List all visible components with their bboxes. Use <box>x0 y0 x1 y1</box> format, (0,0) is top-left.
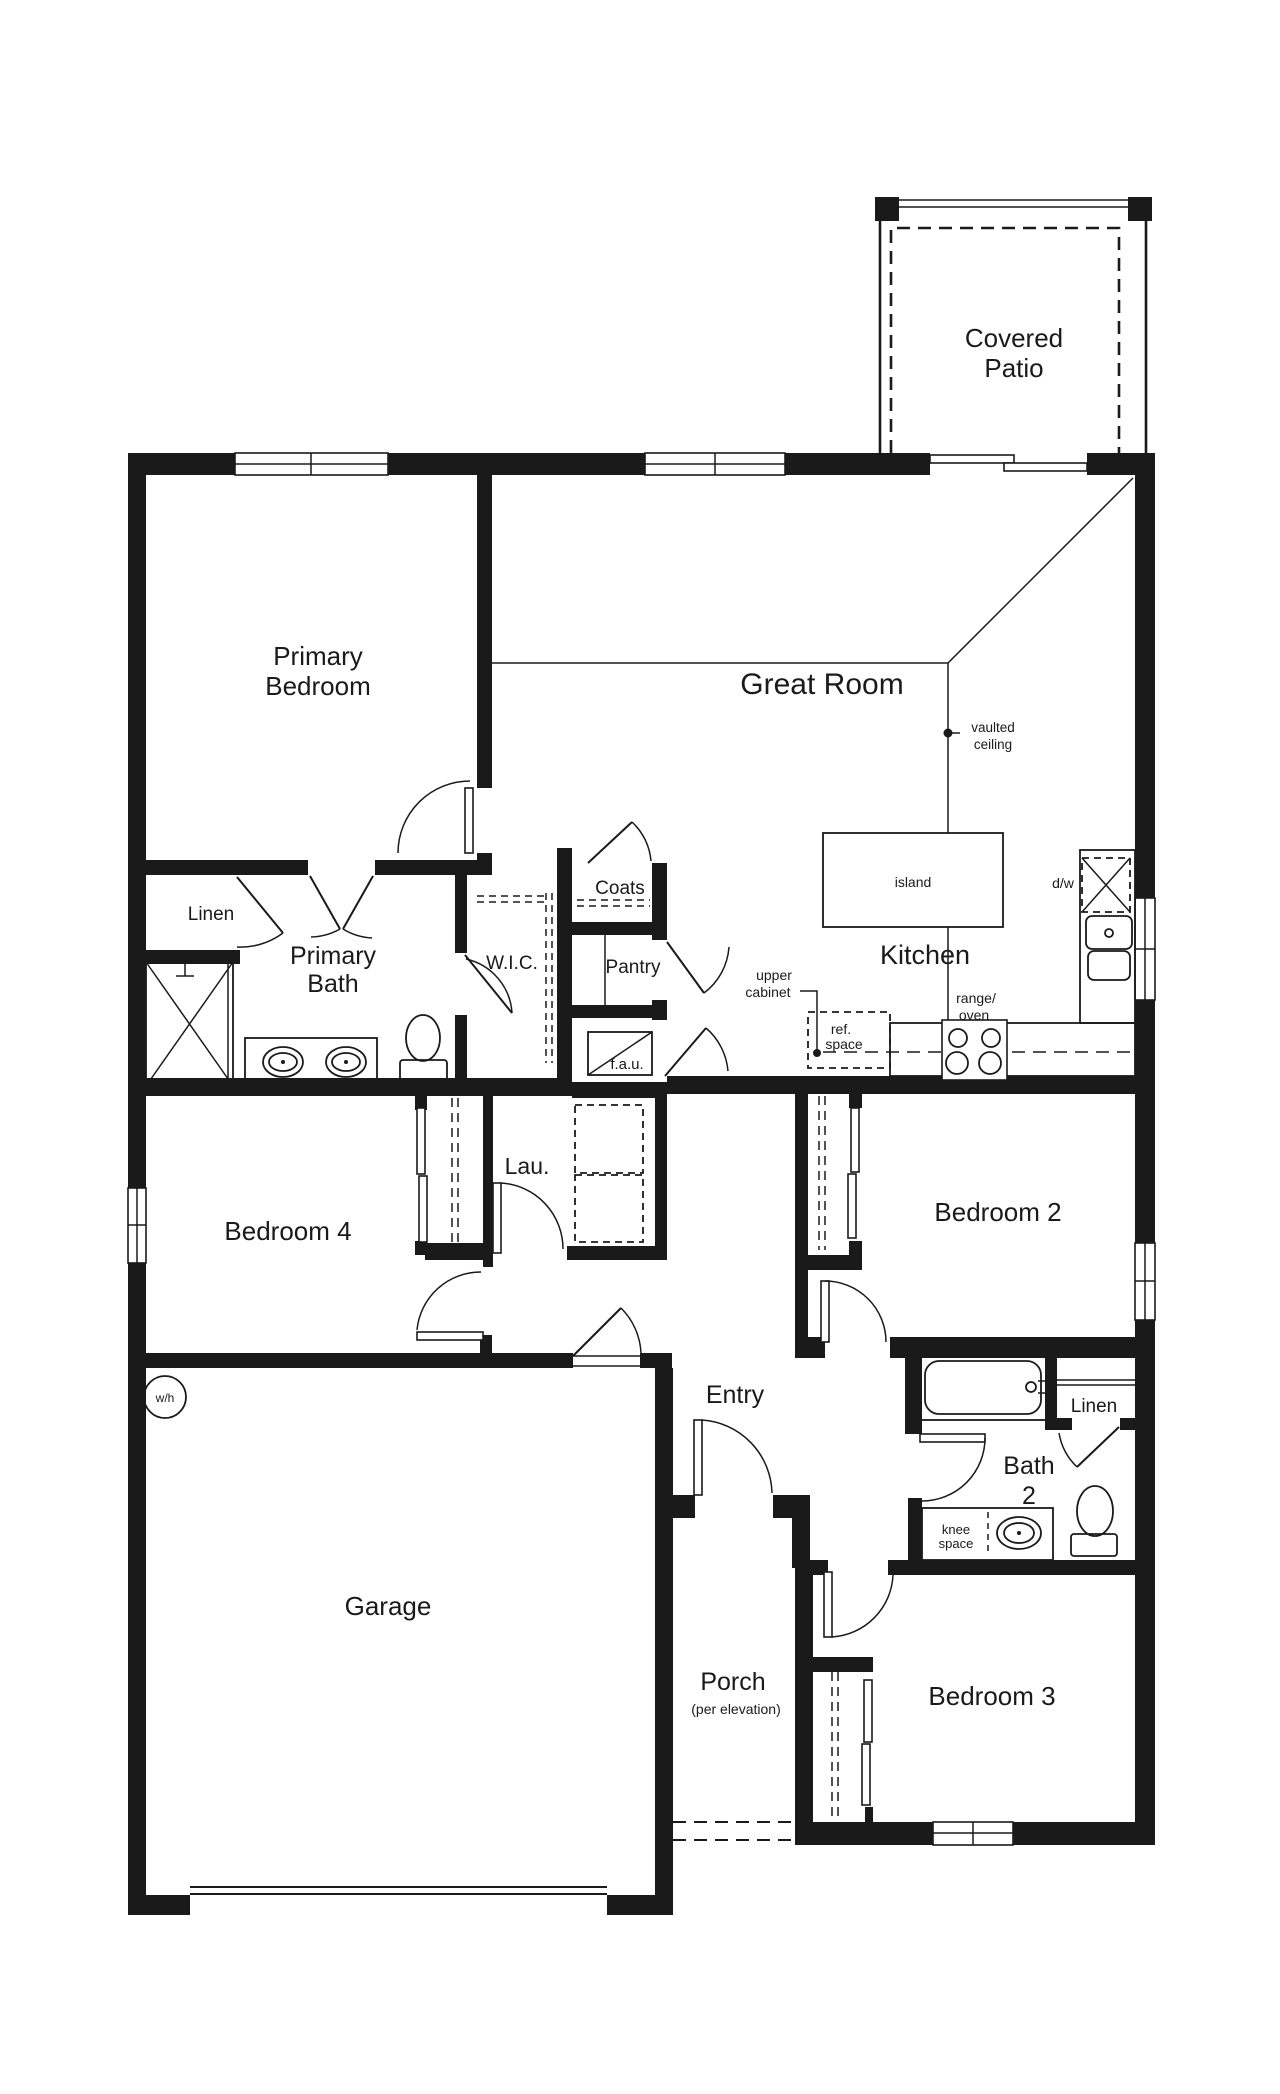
primary-bath-label: Primary <box>290 942 377 970</box>
patio-post <box>875 197 899 221</box>
primary-bedroom-window <box>235 453 388 475</box>
island-label: island <box>895 874 932 890</box>
bath2-label2: 2 <box>1022 1482 1036 1510</box>
floor-plan-canvas: Covered Patio Primary Bedroom Great Room… <box>0 0 1280 2094</box>
primary-toilet <box>400 1015 447 1081</box>
bedroom4-window <box>128 1188 146 1263</box>
bedroom2-door <box>821 1281 886 1342</box>
kitchen-label: Kitchen <box>880 940 970 970</box>
knee-space-label: knee <box>942 1522 970 1537</box>
bedroom4-closet <box>417 1098 458 1252</box>
pantry-door <box>667 942 729 993</box>
linen-primary-door <box>237 877 283 947</box>
primary-bedroom-label2: Bedroom <box>265 671 371 701</box>
upper-cabinet-label: upper <box>756 967 792 983</box>
porch-label: Porch <box>700 1668 765 1696</box>
dishwasher <box>1082 858 1130 912</box>
range-oven-label2: oven <box>959 1007 989 1023</box>
primary-bedroom-door <box>398 781 473 853</box>
coats-label: Coats <box>595 878 645 899</box>
porch-edge-dashes <box>673 1822 792 1840</box>
bath2-toilet <box>1071 1486 1117 1556</box>
vaulted-ceiling-label: vaulted <box>971 720 1015 735</box>
front-door <box>694 1420 772 1495</box>
patio-sliding-door <box>930 455 1087 471</box>
pantry-label: Pantry <box>606 957 661 978</box>
ref-space-label: ref. <box>831 1021 851 1037</box>
bedroom3-closet <box>832 1672 872 1820</box>
coats-shelf <box>577 900 650 906</box>
linen-bath2-label: Linen <box>1071 1396 1118 1417</box>
ref-space-label2: space <box>825 1036 863 1052</box>
coats-door <box>588 822 651 863</box>
knee-space-label2: space <box>939 1536 974 1551</box>
primary-bedroom-label: Primary <box>273 641 363 671</box>
bedroom2-label: Bedroom 2 <box>934 1197 1061 1227</box>
bath2-label: Bath <box>1003 1452 1054 1480</box>
laundry-door <box>493 1183 563 1253</box>
kitchen-window <box>1135 898 1155 1000</box>
bedroom4-label: Bedroom 4 <box>224 1216 351 1246</box>
covered-patio-label2: Patio <box>984 353 1043 383</box>
bedroom3-label: Bedroom 3 <box>928 1681 1055 1711</box>
garage-label: Garage <box>345 1591 432 1621</box>
bedroom2-window <box>1135 1243 1155 1320</box>
bedroom2-closet <box>819 1096 859 1250</box>
wic-label: W.I.C. <box>486 953 538 974</box>
fau-label: f.a.u. <box>610 1056 643 1073</box>
floor-plan-page: Covered Patio Primary Bedroom Great Room… <box>0 0 1280 2094</box>
vaulted-ceiling-label2: ceiling <box>974 737 1012 752</box>
linen-bath2-shelf <box>1057 1380 1135 1385</box>
garage-door <box>190 1887 607 1894</box>
great-room-label: Great Room <box>740 668 903 701</box>
bathtub <box>918 1355 1048 1420</box>
laundry-appliances <box>575 1105 643 1242</box>
dishwasher-label: d/w <box>1052 875 1075 891</box>
patio-post <box>1128 197 1152 221</box>
wic-shelving <box>477 893 552 1063</box>
primary-bath-label2: Bath <box>307 970 358 998</box>
great-room-window <box>645 453 785 475</box>
kitchen-sink <box>1086 916 1132 980</box>
entry-label: Entry <box>706 1381 765 1409</box>
covered-patio-label: Covered <box>965 323 1063 353</box>
ceiling-lines <box>490 478 1133 1023</box>
laundry-label: Lau. <box>505 1153 550 1179</box>
range-oven-label: range/ <box>956 990 996 1006</box>
primary-bath-double-doors <box>310 876 373 938</box>
shower <box>146 962 233 1086</box>
garage-entry-door <box>573 1308 641 1366</box>
bath2-door <box>920 1434 985 1501</box>
bedroom3-door <box>824 1572 893 1637</box>
bedroom4-entry-door <box>417 1272 483 1340</box>
water-heater-label: w/h <box>155 1391 175 1405</box>
fau-door <box>665 1028 728 1076</box>
upper-cabinet-leader <box>800 991 821 1057</box>
linen-primary-label: Linen <box>188 904 235 925</box>
linen-bath2-door <box>1059 1427 1119 1467</box>
bedroom3-window <box>933 1822 1013 1845</box>
upper-cabinet-label2: cabinet <box>745 984 790 1000</box>
porch-note-label: (per elevation) <box>691 1701 781 1717</box>
